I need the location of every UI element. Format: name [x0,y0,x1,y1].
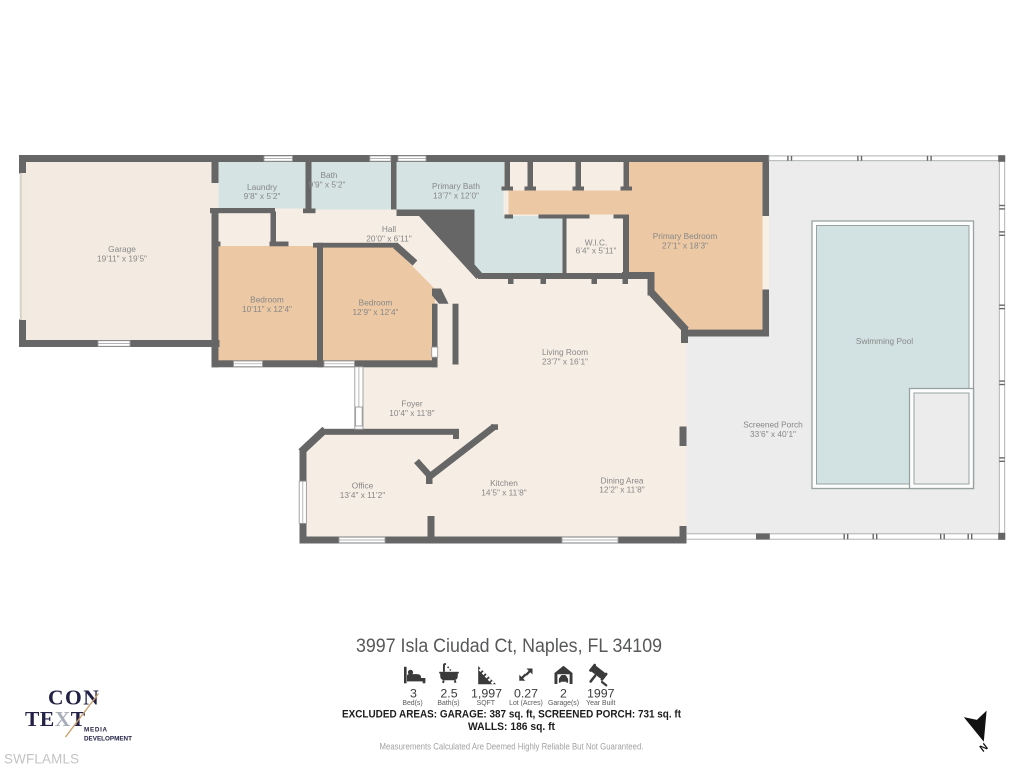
svg-text:13’7" x 12’0": 13’7" x 12’0" [433,191,479,201]
svg-text:Bath(s): Bath(s) [437,700,459,707]
svg-text:Swimming Pool: Swimming Pool [856,336,913,346]
svg-text:CON: CON [48,686,100,710]
svg-text:2: 2 [560,687,567,701]
svg-text:Year Built: Year Built [586,700,615,707]
svg-text:Lot (Acres): Lot (Acres) [509,700,543,707]
svg-text:12’9" x 12’4": 12’9" x 12’4" [352,307,398,317]
svg-text:23’7" x 16’1": 23’7" x 16’1" [542,357,588,367]
svg-text:3997 Isla Ciudad Ct, Naples, F: 3997 Isla Ciudad Ct, Naples, FL 34109 [356,636,662,657]
svg-text:SWFLAMLS: SWFLAMLS [4,752,79,767]
svg-text:20’0" x 6’11": 20’0" x 6’11" [366,233,411,243]
svg-text:13’4" x 11’2": 13’4" x 11’2" [340,490,385,500]
svg-text:EXCLUDED AREAS: GARAGE: 387 sq: EXCLUDED AREAS: GARAGE: 387 sq. ft, SCRE… [342,709,681,721]
svg-text:DEVELOPMENT: DEVELOPMENT [84,736,132,743]
svg-text:Bed(s): Bed(s) [402,700,422,707]
svg-text:Kitchen: Kitchen [490,478,518,488]
svg-text:SQFT: SQFT [477,700,496,707]
svg-text:14’5" x 11’8": 14’5" x 11’8" [481,488,526,498]
svg-text:9’8" x 5’2": 9’8" x 5’2" [244,191,281,201]
svg-text:6’4" x 5’11": 6’4" x 5’11" [576,246,617,256]
svg-text:Garage(s): Garage(s) [548,700,579,707]
svg-text:MEDIA: MEDIA [84,727,108,734]
svg-text:Office: Office [352,481,374,491]
svg-text:Living Room: Living Room [542,347,588,357]
svg-text:9’9" x 5’2": 9’9" x 5’2" [309,179,346,189]
svg-text:Measurements Calculated Are De: Measurements Calculated Are Deemed Highl… [380,742,644,752]
svg-text:WALLS: 186 sq. ft: WALLS: 186 sq. ft [468,721,555,733]
svg-text:2.5: 2.5 [440,687,457,701]
svg-text:Garage: Garage [108,244,136,254]
svg-text:10’11" x 12’4": 10’11" x 12’4" [242,304,292,314]
svg-text:12’2" x 11’8": 12’2" x 11’8" [599,485,644,495]
svg-text:Screened Porch: Screened Porch [743,420,803,430]
svg-text:0.27: 0.27 [514,687,538,701]
svg-text:19’11" x 19’5": 19’11" x 19’5" [97,254,147,264]
svg-text:33’6" x 40’1": 33’6" x 40’1" [750,429,796,439]
svg-text:1997: 1997 [587,687,615,701]
svg-text:Foyer: Foyer [401,399,422,409]
svg-text:TEXT: TEXT [25,707,86,731]
svg-text:10’4" x 11’8": 10’4" x 11’8" [389,408,434,418]
svg-text:3: 3 [410,687,417,701]
svg-text:27’1" x 18’3": 27’1" x 18’3" [662,240,708,250]
svg-text:1,997: 1,997 [471,687,502,701]
